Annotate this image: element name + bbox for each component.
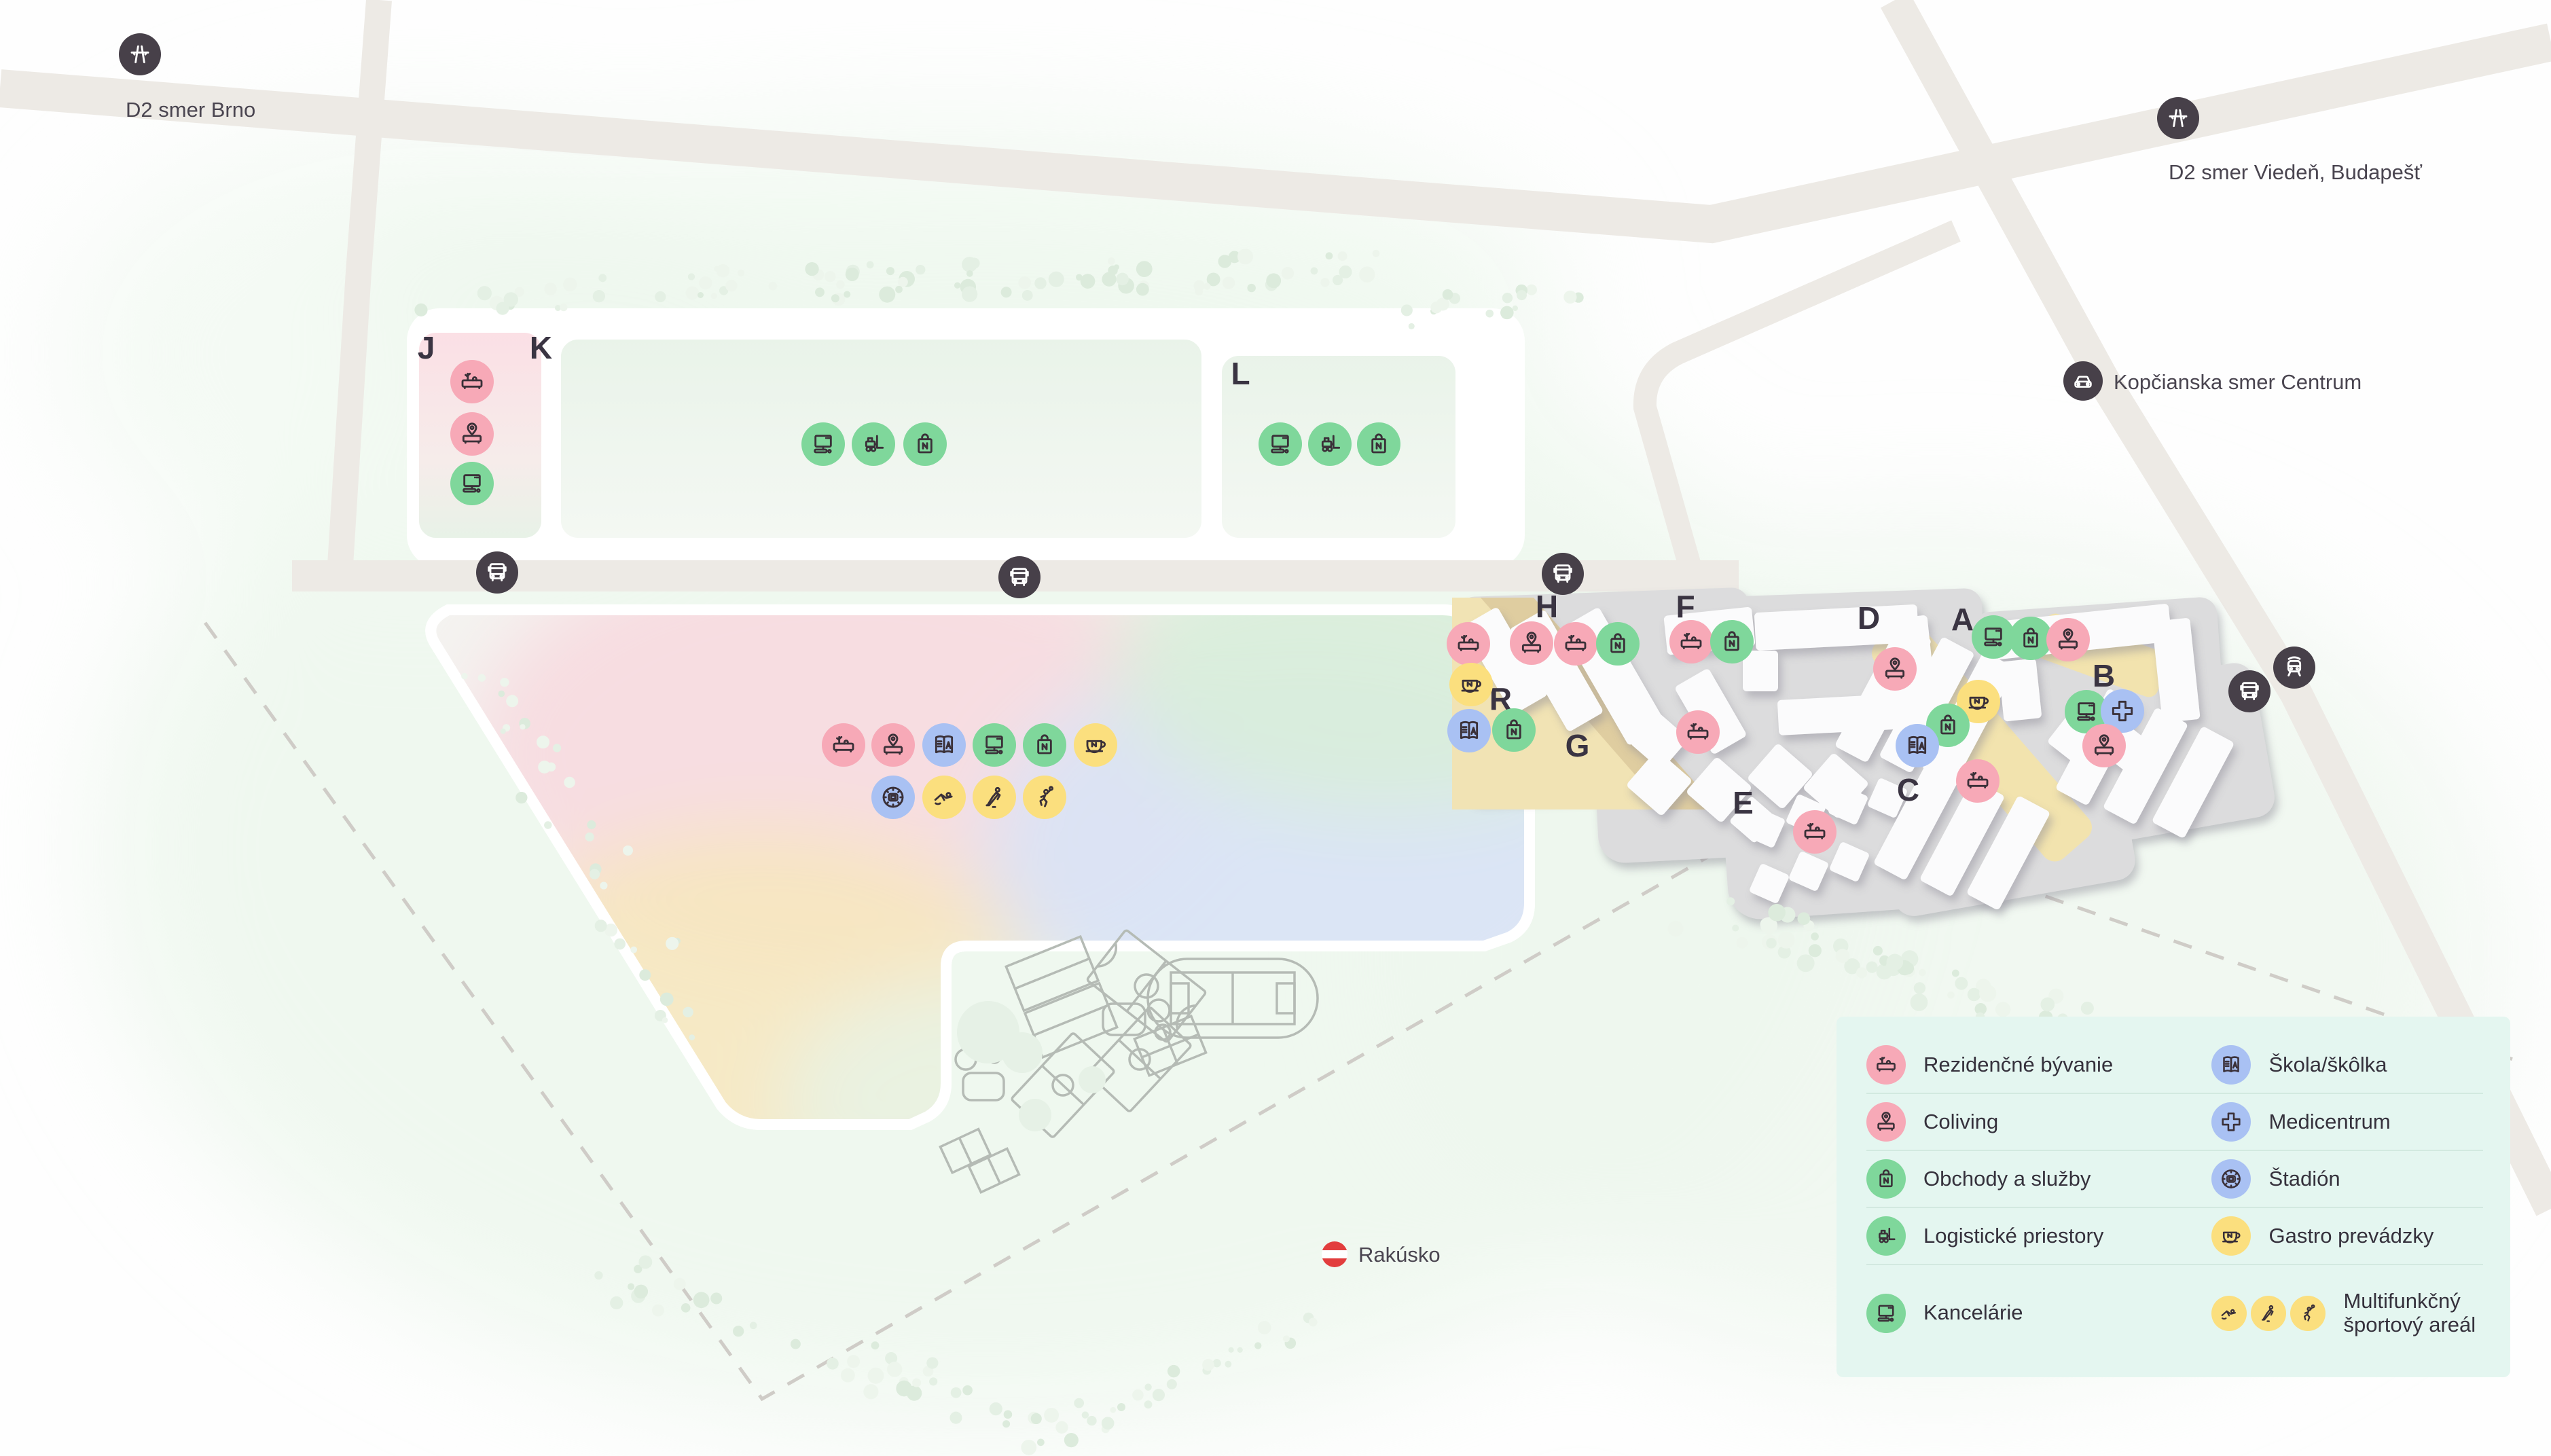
shops-glyph [1718, 628, 1745, 655]
gastro-marker-icon[interactable] [1449, 663, 1493, 706]
bus-glyph [2236, 678, 2263, 705]
shops-glyph [1031, 731, 1058, 759]
sport-icons-group [2211, 1296, 2326, 1331]
hockey-player-icon [2251, 1296, 2286, 1331]
car-icon [2063, 361, 2103, 401]
zone-label-C[interactable]: C [1897, 771, 1920, 808]
coliving-icon [1866, 1102, 1906, 1142]
shops-marker-icon[interactable] [1023, 723, 1066, 767]
swim-marker-icon[interactable] [922, 776, 966, 819]
residential-glyph [1964, 767, 1991, 795]
tram-glyph [2281, 654, 2308, 681]
residential-marker-icon[interactable] [450, 360, 494, 403]
legend-label: Obchody a služby [1923, 1167, 2091, 1191]
motorway-icon [119, 33, 161, 75]
residential-marker-icon[interactable] [822, 723, 865, 767]
legend-row: Logistické priestory Gastro prevádzky [1866, 1207, 2483, 1264]
residential-marker-icon[interactable] [1956, 759, 2000, 803]
shops-glyph [1934, 712, 1961, 739]
coliving-glyph [2091, 732, 2118, 759]
offices-glyph [810, 431, 837, 458]
stadium-icon [2211, 1159, 2251, 1199]
coliving-marker-icon[interactable] [1873, 647, 1917, 691]
legend-label: Kancelárie [1923, 1301, 2023, 1325]
road-label-austria: Rakúsko [1358, 1243, 1441, 1267]
residential-glyph [830, 731, 857, 759]
bus-stop-icon[interactable] [476, 551, 518, 594]
logistics-marker-icon[interactable] [852, 422, 895, 466]
residential-glyph [1801, 818, 1828, 845]
residential-marker-icon[interactable] [1447, 622, 1490, 666]
offices-glyph [458, 470, 486, 497]
gastro-marker-icon[interactable] [1074, 723, 1117, 767]
offices-glyph [1980, 623, 2007, 651]
coffee-cup-icon [2211, 1216, 2251, 1256]
zone-label-B[interactable]: B [2093, 657, 2116, 694]
shops-glyph [911, 431, 939, 458]
legend-label: Rezidenčné bývanie [1923, 1053, 2113, 1077]
shops-marker-icon[interactable] [903, 422, 947, 466]
school-glyph [1455, 717, 1483, 744]
coliving-glyph [880, 731, 907, 759]
residential-marker-icon[interactable] [1554, 622, 1597, 666]
medic-cross-icon [2211, 1102, 2251, 1142]
zone-label-G[interactable]: G [1566, 727, 1591, 764]
legend-row: Rezidenčné bývanie Škola/škôlka [1866, 1037, 2483, 1093]
school-marker-icon[interactable] [1447, 709, 1491, 752]
legend-label: Medicentrum [2268, 1110, 2390, 1134]
residential-marker-icon[interactable] [1676, 710, 1720, 754]
residential-glyph [1684, 718, 1712, 746]
bus-glyph [1006, 564, 1033, 591]
hockey-glyph [981, 784, 1008, 811]
legend-label: Gastro prevádzky [2268, 1224, 2434, 1248]
school-glyph [930, 731, 958, 759]
zone-label-K[interactable]: K [530, 329, 553, 366]
coliving-glyph [1518, 630, 1545, 657]
tram-stop-icon[interactable] [2273, 647, 2315, 689]
gastro-glyph [1965, 688, 1992, 715]
legend-item-shops: Obchody a služby [1866, 1159, 2211, 1199]
residential-marker-icon[interactable] [1669, 620, 1713, 663]
hockey-marker-icon[interactable] [973, 776, 1016, 819]
road-label-d2-vienna: D2 smer Viedeň, Budapešť [2169, 160, 2422, 185]
offices-glyph [2073, 698, 2100, 725]
residential-glyph [1678, 628, 1705, 655]
residential-icon [1866, 1045, 1906, 1085]
road-label-kopcianska: Kopčianska smer Centrum [2114, 370, 2362, 395]
forklift-icon [1866, 1216, 1906, 1256]
legend-label: Logistické priestory [1923, 1224, 2103, 1248]
school-marker-icon[interactable] [1896, 724, 1939, 767]
coliving-marker-icon[interactable] [1510, 621, 1553, 665]
stadium-marker-icon[interactable] [871, 776, 915, 819]
motorway-icon [2157, 97, 2199, 139]
legend-row: Kancelárie Multifunkčný športový areál [1866, 1264, 2483, 1361]
offices-marker-icon[interactable] [1259, 422, 1302, 466]
bus-glyph [1549, 560, 1576, 587]
logistics-glyph [1316, 431, 1343, 458]
medic-glyph [2109, 697, 2136, 725]
shops-glyph [2017, 625, 2044, 652]
legend-item-gastro: Gastro prevádzky [2211, 1216, 2483, 1256]
coliving-glyph [2055, 626, 2082, 653]
zone-label-J[interactable]: J [418, 329, 436, 366]
coliving-marker-icon[interactable] [2082, 724, 2126, 767]
shops-marker-icon[interactable] [1596, 622, 1640, 666]
offices-glyph [1267, 431, 1294, 458]
residential-glyph [458, 368, 486, 395]
computer-icon [1866, 1294, 1906, 1333]
legend-row: Coliving Medicentrum [1866, 1093, 2483, 1150]
school-marker-icon[interactable] [922, 723, 966, 767]
shops-marker-icon[interactable] [1492, 708, 1536, 752]
legend-label: Multifunkčný športový areál [2343, 1290, 2483, 1336]
legend-item-sport-area: Multifunkčný športový areál [2211, 1290, 2483, 1336]
shops-glyph [1500, 716, 1527, 744]
shops-marker-icon[interactable] [1357, 422, 1400, 466]
residential-marker-icon[interactable] [1793, 810, 1837, 854]
shops-glyph [1604, 630, 1631, 657]
legend-label: Štadión [2268, 1167, 2340, 1191]
legend-item-coliving: Coliving [1866, 1102, 2211, 1142]
volleyball-player-icon [2290, 1296, 2326, 1331]
offices-marker-icon[interactable] [801, 422, 845, 466]
coliving-marker-icon[interactable] [450, 412, 494, 456]
shops-marker-icon[interactable] [1710, 620, 1754, 663]
legend-item-residential: Rezidenčné bývanie [1866, 1045, 2211, 1085]
logistics-marker-icon[interactable] [1308, 422, 1352, 466]
residential-glyph [1562, 630, 1589, 657]
school-glyph [1904, 732, 1931, 759]
zone-label-E[interactable]: E [1733, 784, 1754, 821]
legend-row: Obchody a služby Štadión [1866, 1150, 2483, 1207]
bus-stop-icon[interactable] [998, 556, 1041, 598]
gastro-glyph [1082, 731, 1109, 759]
legend-label: Škola/škôlka [2268, 1053, 2387, 1077]
bus-stop-icon[interactable] [1542, 553, 1584, 595]
zone-label-L[interactable]: L [1231, 355, 1250, 392]
school-icon [2211, 1045, 2251, 1085]
swimmer-icon [2211, 1296, 2247, 1331]
offices-glyph [981, 731, 1008, 759]
legend-panel: Rezidenčné bývanie Škola/škôlka Coliving [1837, 1017, 2510, 1377]
austria-flag-icon [1322, 1241, 1347, 1267]
residential-glyph [1455, 630, 1482, 657]
gastro-glyph [1458, 671, 1485, 698]
map-overlay: D2 smer Brno D2 smer Viedeň, Budapešť Ko… [0, 0, 2551, 1456]
logistics-glyph [860, 431, 887, 458]
legend-item-stadium: Štadión [2211, 1159, 2483, 1199]
offices-marker-icon[interactable] [973, 723, 1016, 767]
legend-item-offices: Kancelárie [1866, 1294, 2211, 1333]
volleyball-marker-icon[interactable] [1023, 776, 1066, 819]
legend-item-medicentrum: Medicentrum [2211, 1102, 2483, 1142]
swim-glyph [930, 784, 958, 811]
legend-item-logistics: Logistické priestory [1866, 1216, 2211, 1256]
offices-marker-icon[interactable] [450, 462, 494, 505]
legend-label: Coliving [1923, 1110, 1998, 1134]
bus-glyph [484, 559, 511, 586]
stadium-glyph [880, 784, 907, 811]
coliving-glyph [458, 420, 486, 448]
masterplan-map: D2 smer Brno D2 smer Viedeň, Budapešť Ko… [0, 0, 2551, 1456]
legend-item-school: Škola/škôlka [2211, 1045, 2483, 1085]
coliving-marker-icon[interactable] [2046, 618, 2090, 661]
zone-label-F[interactable]: F [1676, 588, 1695, 625]
coliving-glyph [1881, 655, 1908, 682]
zone-label-D[interactable]: D [1858, 600, 1881, 636]
road-label-d2-brno: D2 smer Brno [126, 98, 255, 122]
volleyball-glyph [1031, 784, 1058, 811]
shops-glyph [1365, 431, 1392, 458]
coliving-marker-icon[interactable] [871, 723, 915, 767]
zone-label-A[interactable]: A [1951, 601, 1974, 638]
bus-stop-icon[interactable] [2228, 670, 2270, 712]
shops-bag-icon [1866, 1159, 1906, 1199]
